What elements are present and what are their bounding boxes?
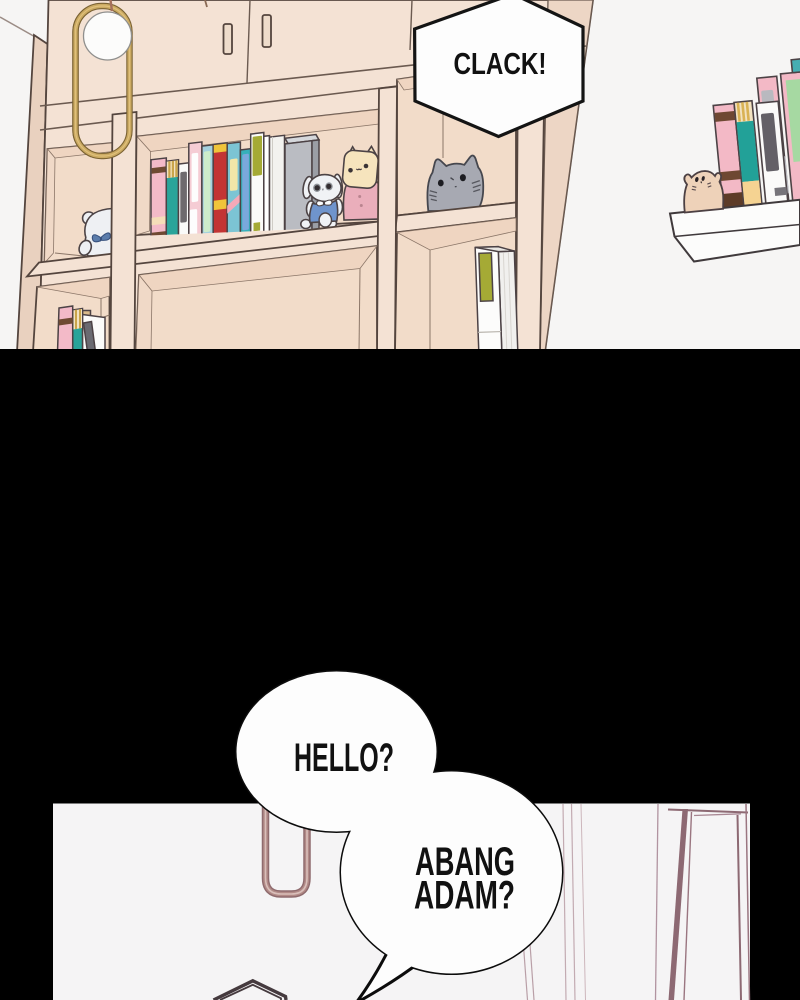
svg-text:CLACK!: CLACK!: [454, 46, 547, 81]
svg-text:HELLO?: HELLO?: [294, 736, 394, 780]
svg-text:ADAM?: ADAM?: [414, 874, 515, 918]
